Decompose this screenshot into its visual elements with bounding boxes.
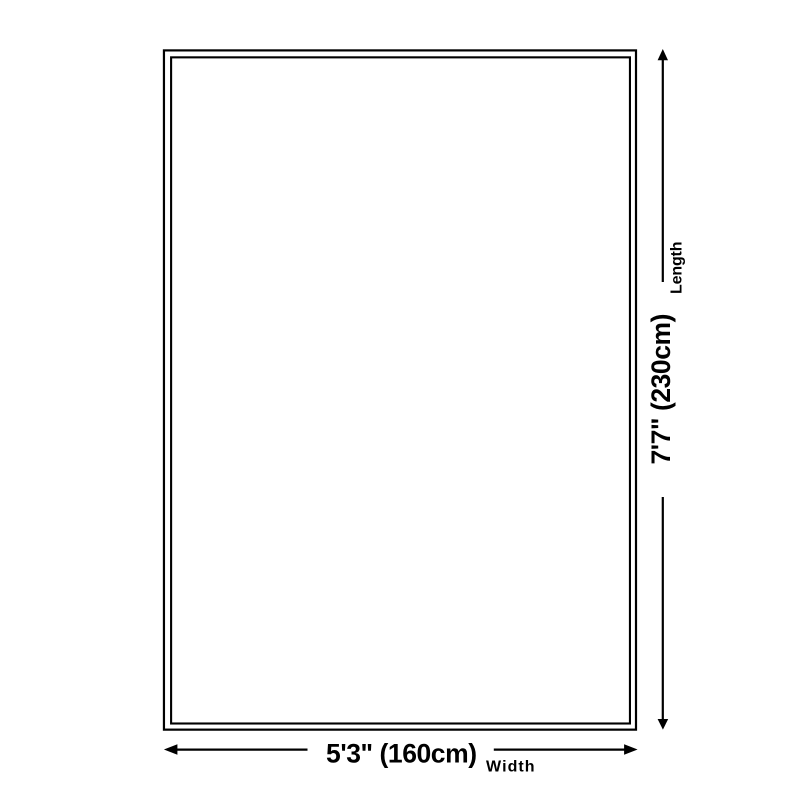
svg-text:7'7" (230cm): 7'7" (230cm) [646, 314, 676, 465]
svg-text:Width: Width [486, 759, 535, 776]
svg-text:5'3" (160cm): 5'3" (160cm) [326, 738, 477, 768]
svg-text:Length: Length [669, 242, 686, 295]
